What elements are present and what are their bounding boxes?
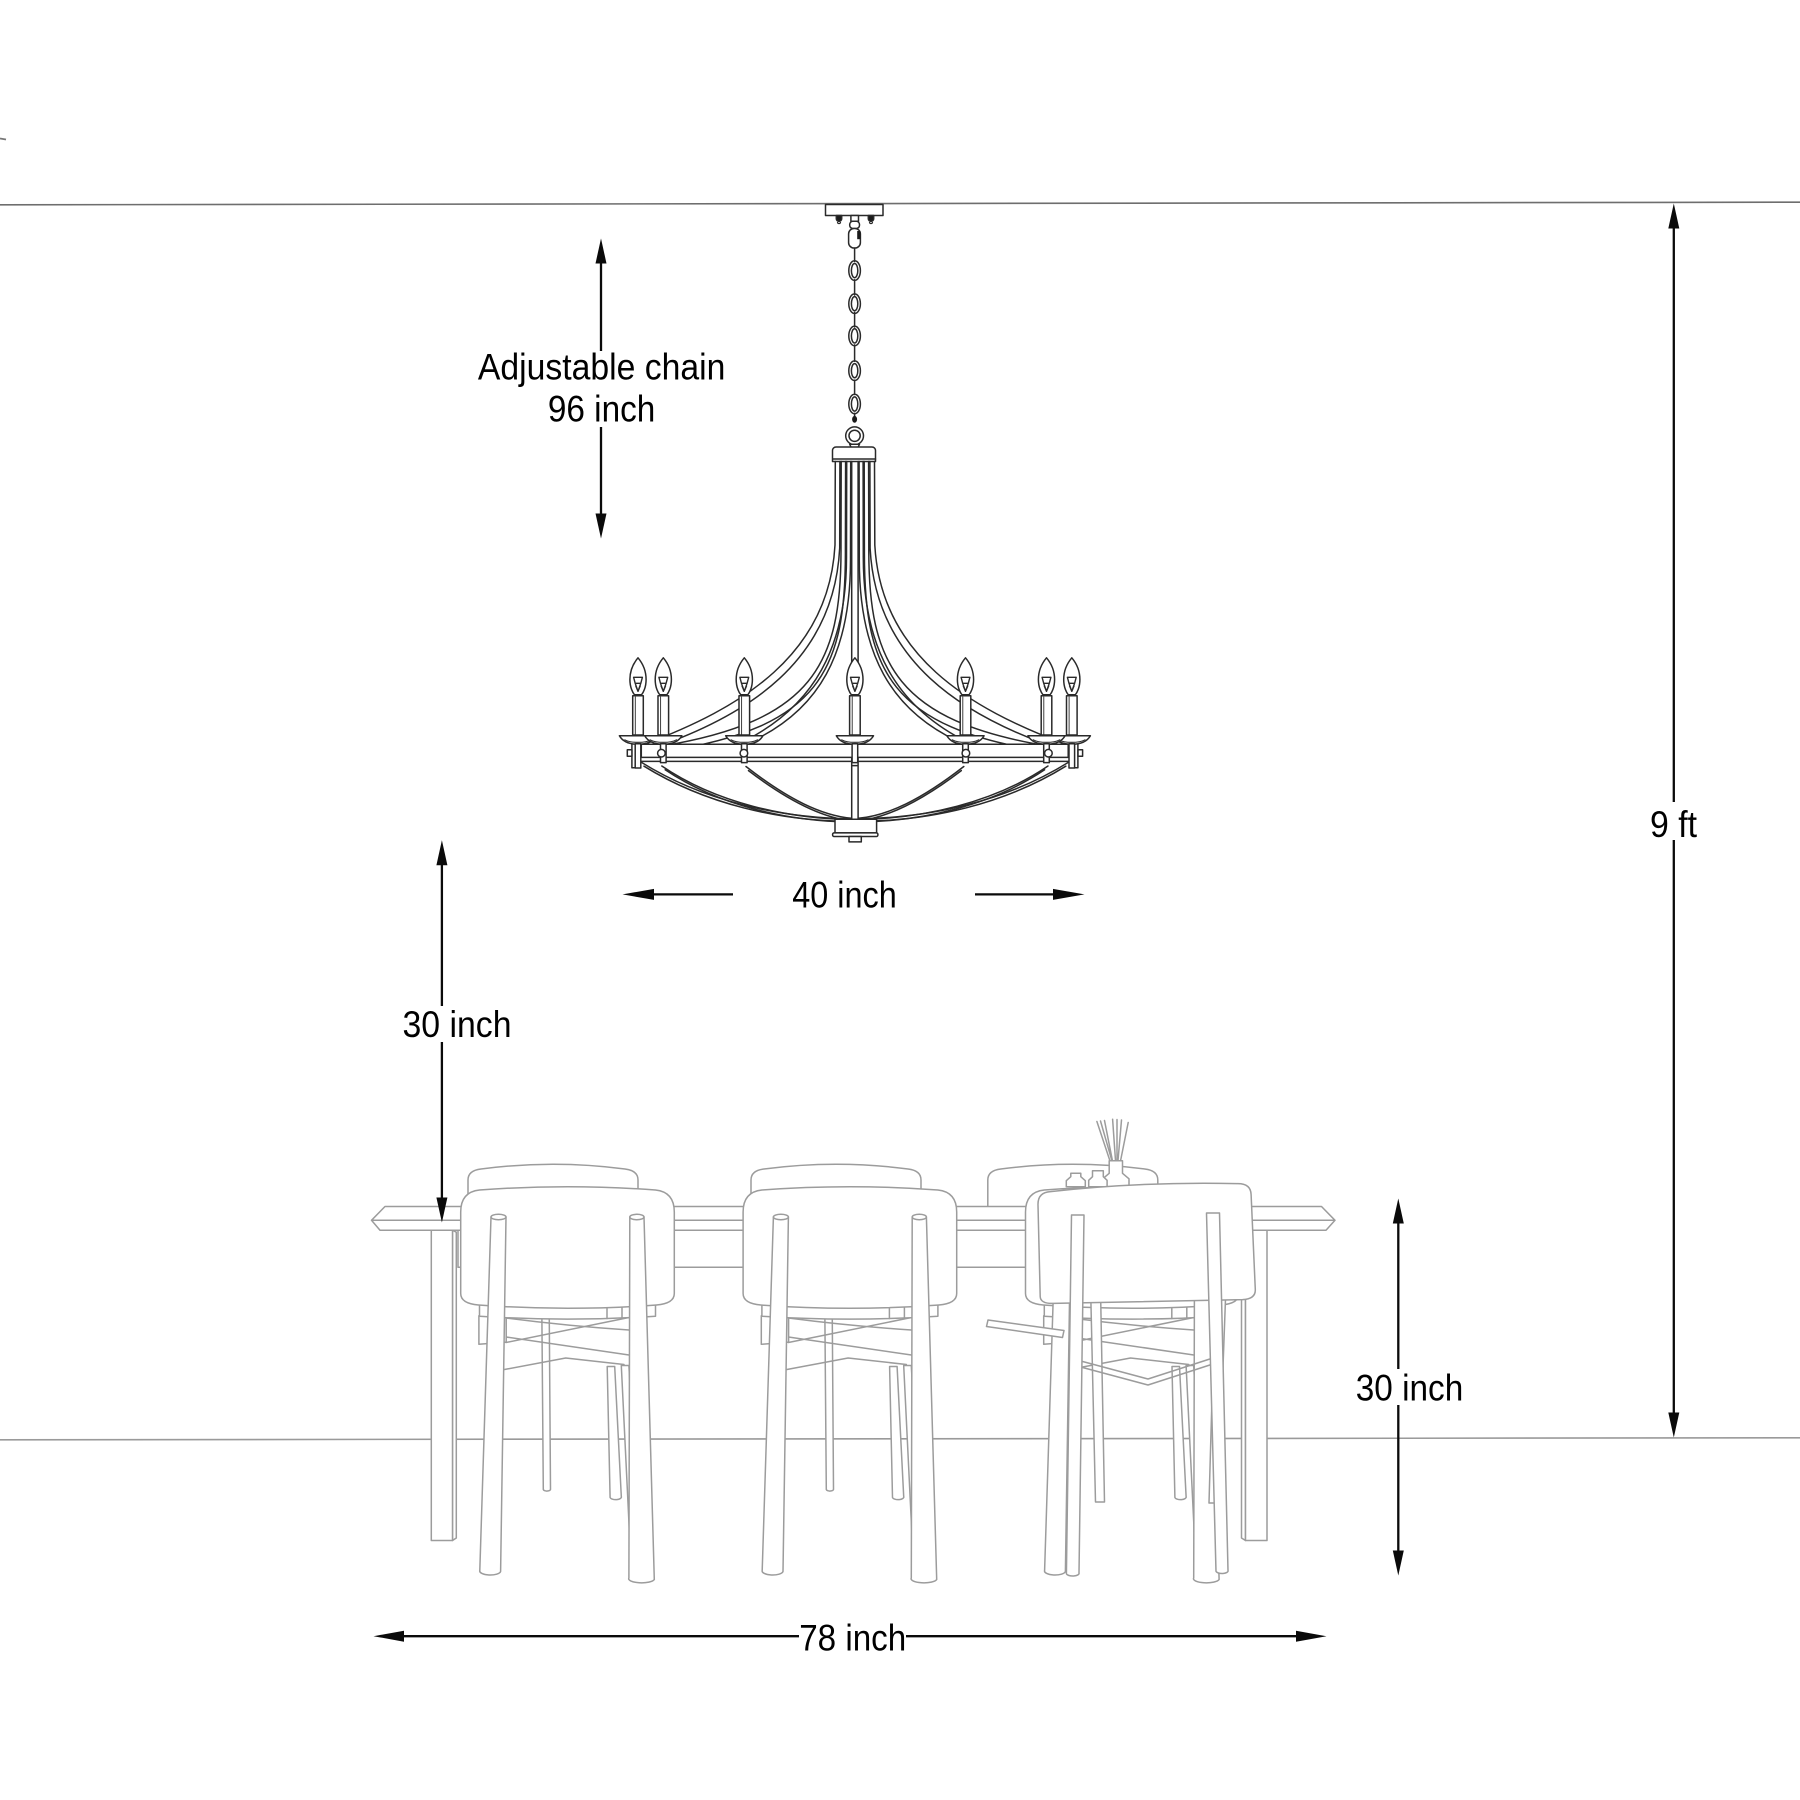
svg-text:30 inch: 30 inch <box>403 1004 512 1045</box>
svg-text:40 inch: 40 inch <box>792 875 897 916</box>
svg-text:9 ft: 9 ft <box>1650 804 1698 845</box>
svg-text:30 inch: 30 inch <box>1356 1368 1464 1409</box>
svg-text:78 inch: 78 inch <box>799 1617 906 1658</box>
svg-text:Adjustable chain: Adjustable chain <box>478 347 726 388</box>
svg-text:96 inch: 96 inch <box>548 389 656 430</box>
